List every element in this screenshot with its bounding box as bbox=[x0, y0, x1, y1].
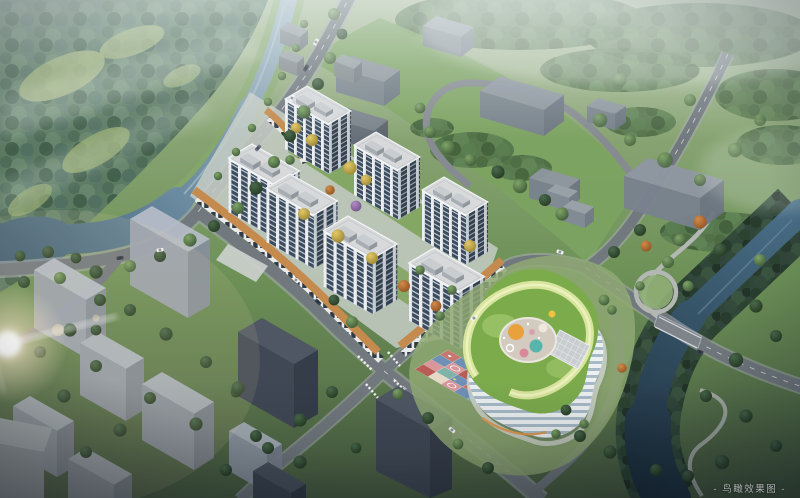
caption: - 鸟瞰效果图 - bbox=[713, 481, 786, 495]
scene-illustration bbox=[0, 0, 800, 498]
aerial-render: - 鸟瞰效果图 - bbox=[0, 0, 800, 498]
bottom-shade bbox=[0, 380, 800, 498]
